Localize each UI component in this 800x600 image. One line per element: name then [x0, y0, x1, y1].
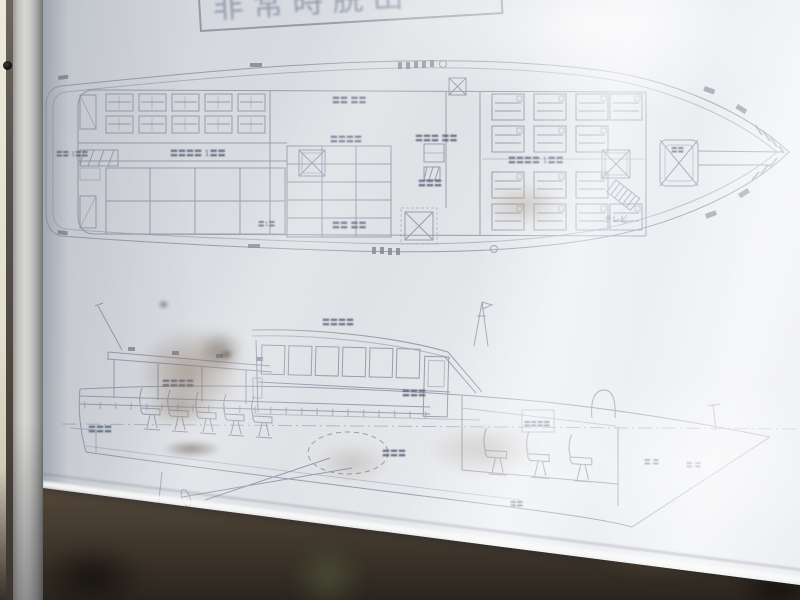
mast-antenna	[474, 302, 492, 346]
illegible-label: 〓〓〓〓	[322, 318, 354, 327]
illegible-label: 〓〓〓 〓〓	[415, 134, 458, 143]
dirt-stain	[315, 444, 389, 482]
dirt-stain	[488, 184, 562, 226]
illegible-label: 〓〓〓	[88, 425, 112, 434]
backing-dark-corner-left	[37, 543, 147, 600]
illegible-label: 〓〓〓	[402, 389, 426, 398]
illegible-label: 〓.〓	[686, 461, 701, 469]
illegible-label: 〓〓	[671, 146, 684, 154]
illegible-label: 〓〓〓〓	[524, 420, 550, 428]
illegible-label: 〓〓〓〓	[330, 135, 362, 144]
dirt-stain	[148, 390, 212, 426]
illegible-label: 〓〓 〓〓	[332, 96, 367, 105]
dirt-stain	[428, 424, 544, 476]
illegible-label: 〓〓	[510, 500, 523, 508]
stern-antenna	[95, 303, 122, 350]
illegible-label: 〓〓·1〓〓	[56, 150, 88, 158]
cabin-windows	[260, 345, 449, 417]
illegible-label: 〓.〓	[644, 458, 659, 466]
window-frame-shadow	[13, 420, 43, 600]
illegible-label: 〓〓〓〓 1〓〓	[508, 156, 564, 165]
illegible-label: 〓〓 〓〓	[332, 221, 367, 230]
deck-funnel-area	[424, 144, 444, 180]
deck-seats-left	[106, 94, 285, 234]
tv-label: テレビ	[604, 215, 628, 224]
deck-hatch-x-1	[299, 150, 325, 176]
deck-hatch-x-3	[449, 78, 466, 95]
dirt-stain	[162, 440, 222, 458]
illegible-label: 〓〓〓〓 1〓〓	[170, 149, 226, 158]
photo-of-boat-evacuation-diagram: 非常時脱出	[0, 0, 800, 600]
illegible-label: 〓〓〓	[418, 179, 442, 188]
dirt-speck	[220, 349, 233, 360]
screw-icon	[3, 61, 12, 70]
bow-dodger	[592, 390, 616, 418]
dirt-speck	[158, 300, 169, 309]
backing-green-reflection	[293, 543, 363, 600]
deck-hatch-x-2	[401, 208, 437, 244]
deck-hatch-x-4	[602, 150, 630, 178]
bow-tip-hatching	[752, 125, 784, 180]
deck-hull-outline	[46, 61, 789, 252]
deck-plan-drawing	[46, 60, 789, 255]
illegible-label: 〓1〓	[258, 220, 275, 228]
